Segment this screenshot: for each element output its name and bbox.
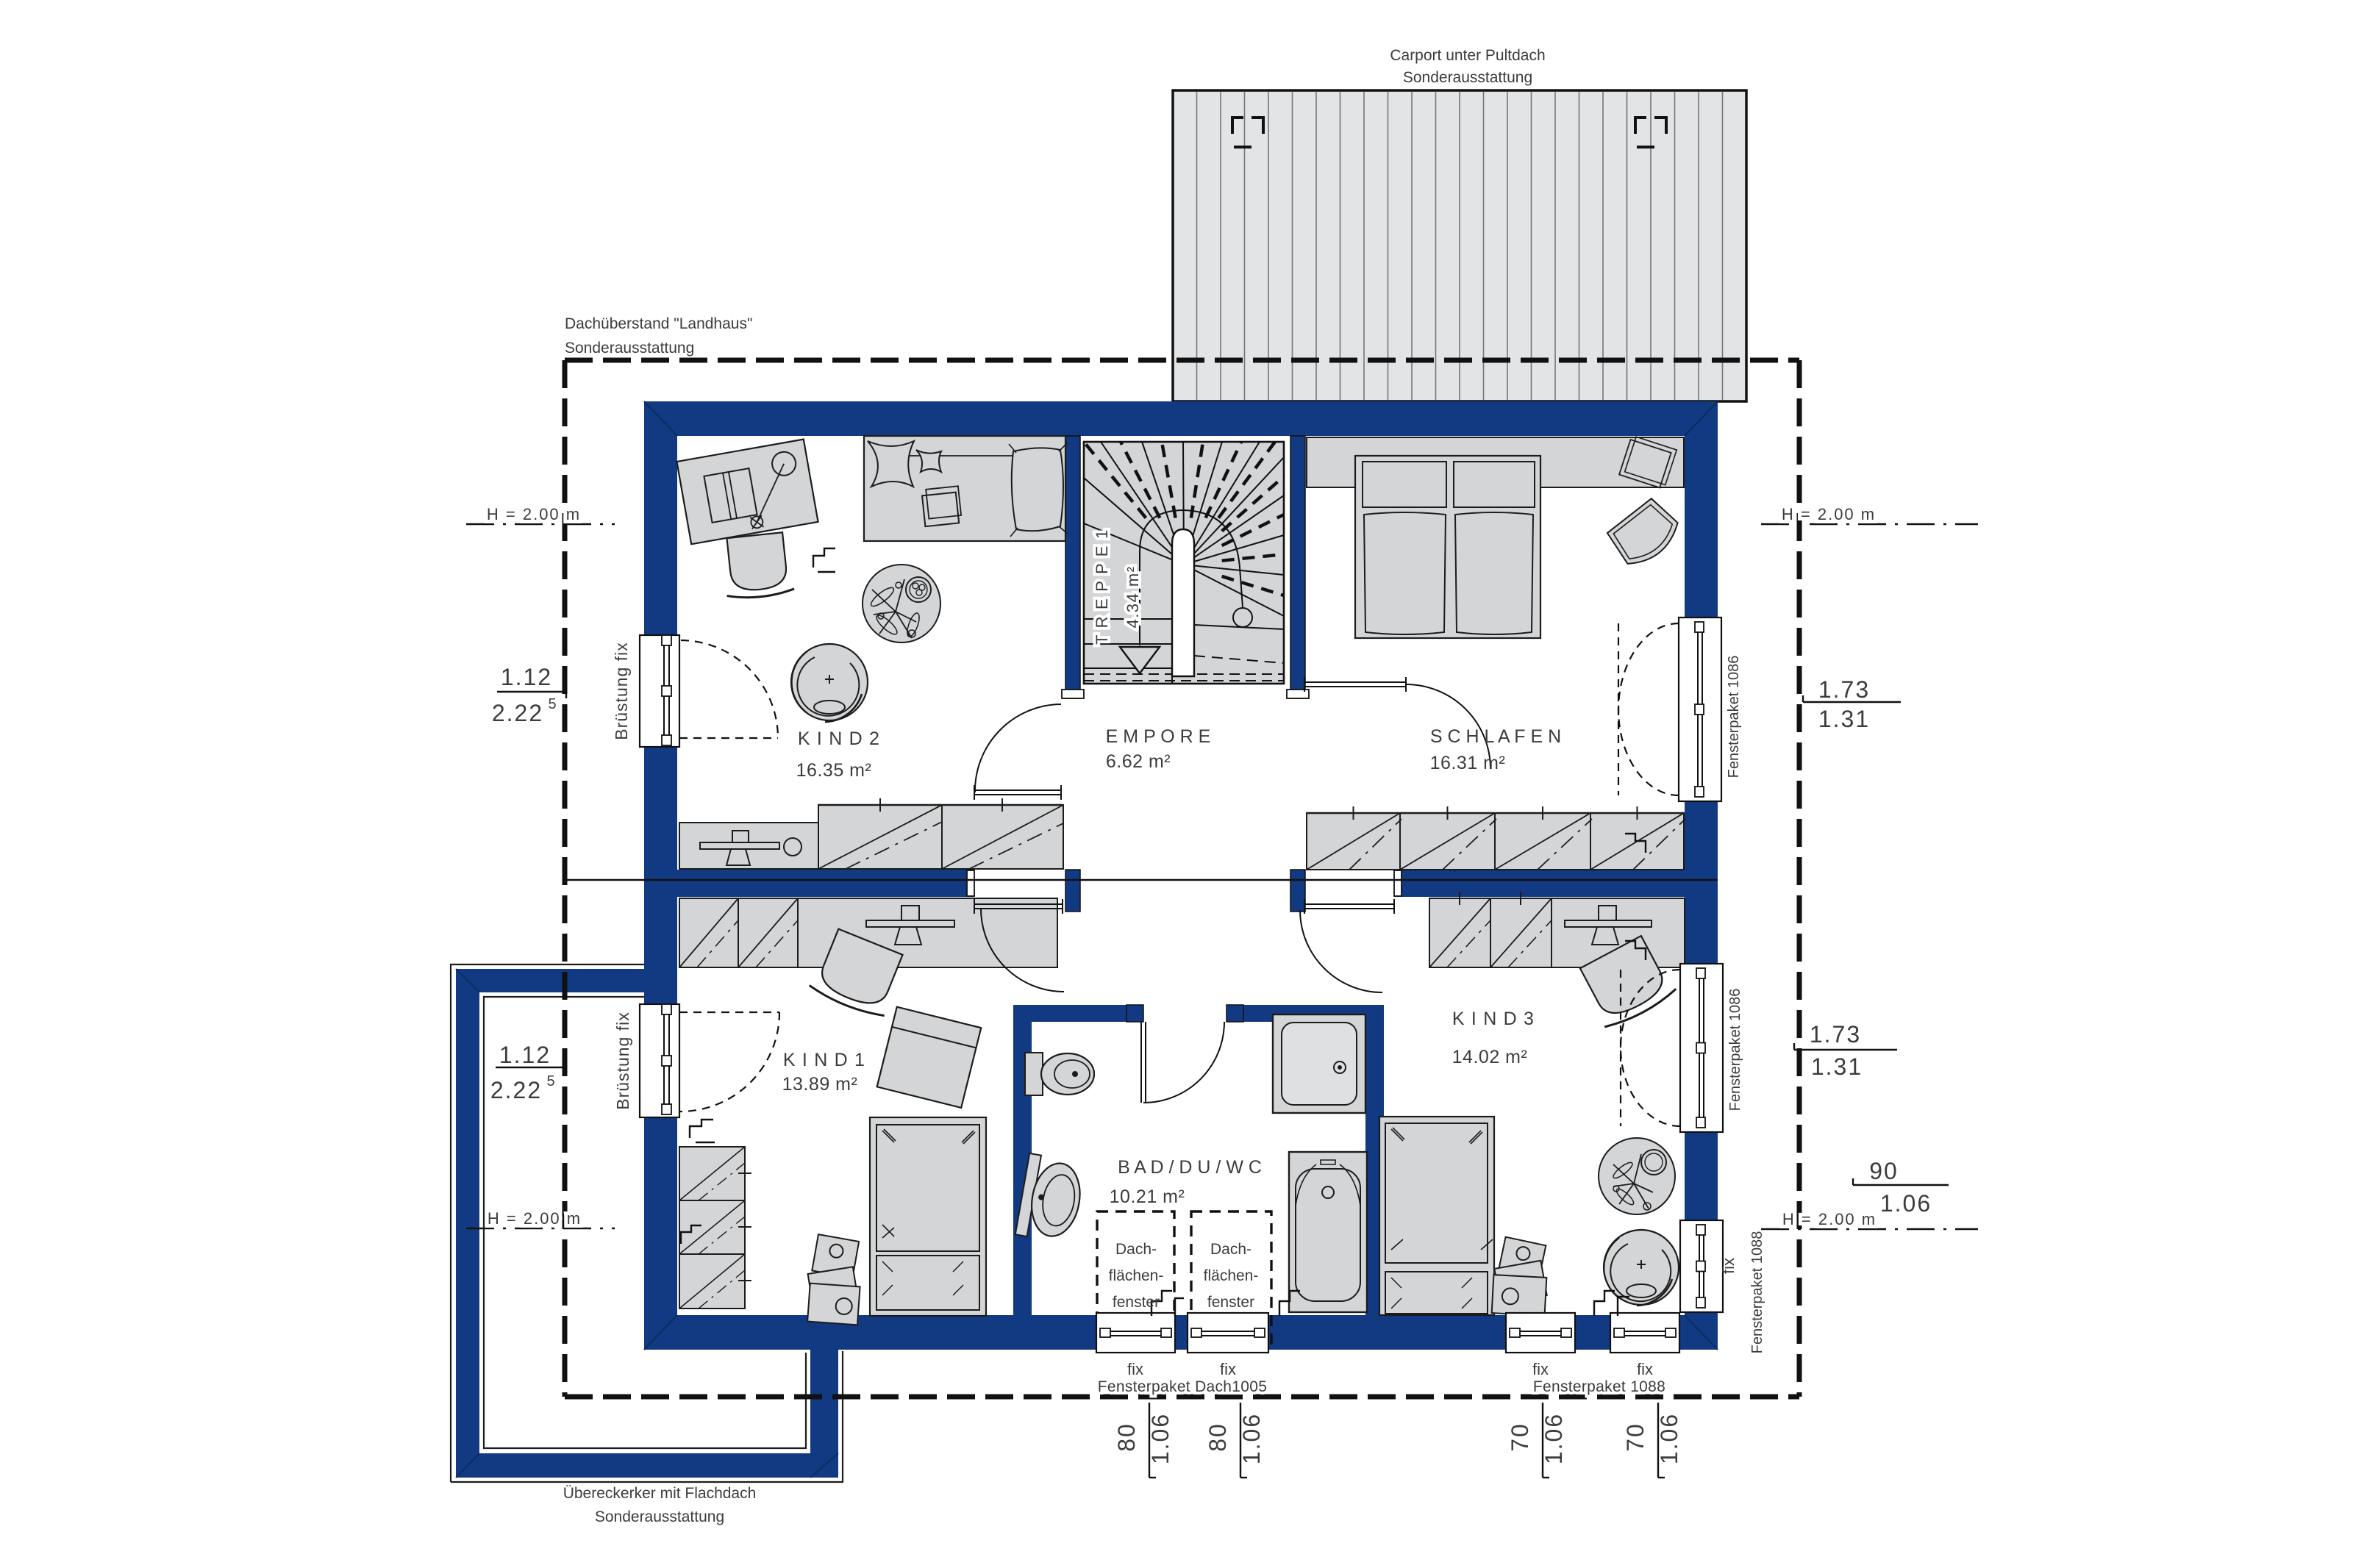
svg-text:1.06: 1.06: [1147, 1413, 1174, 1464]
svg-text:Übereckerker mit Flachdach: Übereckerker mit Flachdach: [563, 1485, 757, 1502]
svg-text:Dach-: Dach-: [1210, 1241, 1252, 1258]
svg-text:S C H L A F E N: S C H L A F E N: [1430, 726, 1561, 747]
svg-text:K I N D 1: K I N D 1: [783, 1050, 865, 1070]
svg-text:1.06: 1.06: [1656, 1413, 1682, 1464]
svg-text:4.34 m²: 4.34 m²: [1124, 565, 1142, 628]
svg-text:Brüstung fix: Brüstung fix: [612, 642, 631, 740]
svg-text:Dach-: Dach-: [1115, 1241, 1157, 1258]
svg-text:T R E P P E 1: T R E P P E 1: [1093, 529, 1111, 645]
svg-text:H = 2.00 m: H = 2.00 m: [1782, 505, 1876, 523]
svg-text:fix: fix: [1220, 1360, 1236, 1378]
svg-text:6.62 m²: 6.62 m²: [1106, 751, 1171, 772]
svg-text:Dachüberstand "Landhaus": Dachüberstand "Landhaus": [565, 315, 752, 332]
svg-text:fix: fix: [1637, 1360, 1653, 1378]
svg-text:B A D / D U / W C: B A D / D U / W C: [1118, 1157, 1262, 1178]
svg-text:13.89 m²: 13.89 m²: [782, 1074, 858, 1095]
svg-text:80: 80: [1204, 1422, 1231, 1452]
svg-text:K I N D 2: K I N D 2: [798, 728, 880, 749]
svg-text:fix: fix: [1532, 1360, 1549, 1378]
svg-text:14.02 m²: 14.02 m²: [1452, 1047, 1528, 1067]
svg-text:1.06: 1.06: [1540, 1413, 1567, 1464]
svg-text:Sonderausstattung: Sonderausstattung: [595, 1508, 724, 1525]
svg-text:flächen-: flächen-: [1109, 1267, 1164, 1284]
svg-text:1.06: 1.06: [1238, 1413, 1265, 1464]
svg-text:fenster: fenster: [1113, 1294, 1160, 1311]
svg-text:1.73: 1.73: [1810, 1021, 1861, 1048]
svg-text:Fensterpaket 1088: Fensterpaket 1088: [1749, 1231, 1765, 1354]
svg-text:Sonderausstattung: Sonderausstattung: [1403, 69, 1532, 86]
svg-text:Fensterpaket Dach1005: Fensterpaket Dach1005: [1098, 1378, 1267, 1395]
svg-text:H = 2.00 m: H = 2.00 m: [1782, 1210, 1877, 1228]
svg-text:1.12: 1.12: [501, 664, 552, 690]
svg-text:16.31 m²: 16.31 m²: [1430, 753, 1506, 773]
svg-text:fix: fix: [1719, 1258, 1738, 1274]
svg-text:Fensterpaket 1086: Fensterpaket 1086: [1726, 656, 1742, 778]
svg-text:fix: fix: [1127, 1360, 1143, 1378]
svg-text:Fensterpaket 1088: Fensterpaket 1088: [1533, 1378, 1665, 1395]
svg-text:16.35 m²: 16.35 m²: [796, 760, 872, 781]
svg-text:E M P O R E: E M P O R E: [1106, 726, 1211, 747]
svg-text:Sonderausstattung: Sonderausstattung: [565, 340, 694, 357]
svg-text:5: 5: [546, 1073, 554, 1089]
svg-text:1.31: 1.31: [1811, 1053, 1863, 1080]
svg-text:K I N D 3: K I N D 3: [1452, 1009, 1535, 1029]
svg-text:flächen-: flächen-: [1204, 1267, 1259, 1284]
svg-text:1.73: 1.73: [1818, 676, 1870, 703]
svg-text:1.12: 1.12: [499, 1042, 551, 1068]
svg-text:H = 2.00 m: H = 2.00 m: [487, 505, 581, 523]
svg-text:70: 70: [1507, 1422, 1533, 1452]
svg-text:10.21 m²: 10.21 m²: [1110, 1186, 1185, 1207]
svg-text:90: 90: [1869, 1158, 1899, 1184]
svg-text:Fensterpaket 1086: Fensterpaket 1086: [1727, 989, 1743, 1111]
svg-text:70: 70: [1622, 1422, 1649, 1452]
svg-text:5: 5: [548, 696, 556, 712]
svg-text:2.22: 2.22: [490, 1077, 542, 1103]
svg-text:Carport unter Pultdach: Carport unter Pultdach: [1390, 47, 1545, 64]
svg-text:1.06: 1.06: [1880, 1190, 1932, 1217]
svg-text:2.22: 2.22: [492, 700, 543, 726]
svg-text:80: 80: [1113, 1422, 1140, 1452]
svg-text:Brüstung fix: Brüstung fix: [613, 1012, 632, 1109]
svg-text:H = 2.00 m: H = 2.00 m: [488, 1209, 582, 1228]
svg-text:1.31: 1.31: [1818, 706, 1870, 732]
svg-text:fenster: fenster: [1207, 1294, 1254, 1311]
